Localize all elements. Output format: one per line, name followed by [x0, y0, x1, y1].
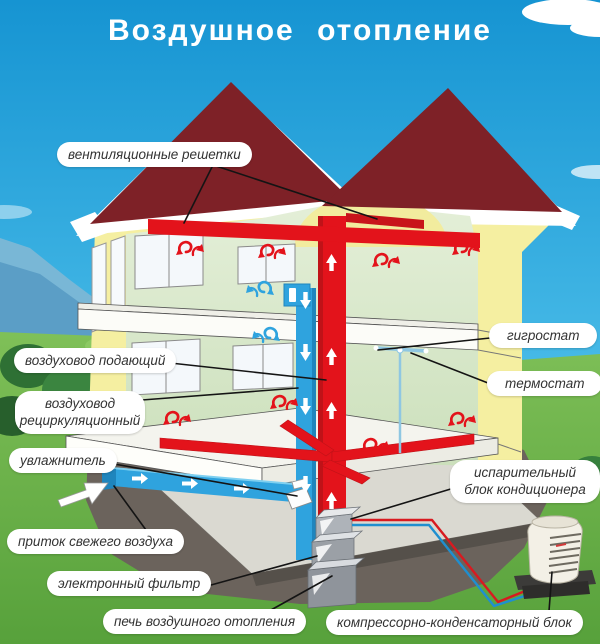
diagram-stage: Воздушное отопление вентиляционные решет… [0, 0, 600, 644]
label-vent-grilles: вентиляционные решетки [57, 142, 252, 167]
label-fresh-air-intake: приток свежего воздуха [7, 529, 184, 554]
label-evaporator-unit: испарительный блок кондиционера [450, 460, 600, 503]
label-humidifier: увлажнитель [9, 448, 117, 473]
label-compressor-unit: компрессорно-конденсаторный блок [326, 610, 583, 635]
page-title: Воздушное отопление [0, 14, 600, 48]
label-furnace: печь воздушного отопления [103, 609, 306, 634]
label-recirc-duct: воздуховод рециркуляционный [15, 391, 145, 434]
furnace-device [308, 558, 364, 608]
label-supply-duct: воздуховод подающий [14, 348, 176, 373]
label-hygrostat: гигростат [489, 323, 597, 348]
label-thermostat: термостат [487, 371, 600, 396]
label-electronic-filter: электронный фильтр [47, 571, 211, 596]
